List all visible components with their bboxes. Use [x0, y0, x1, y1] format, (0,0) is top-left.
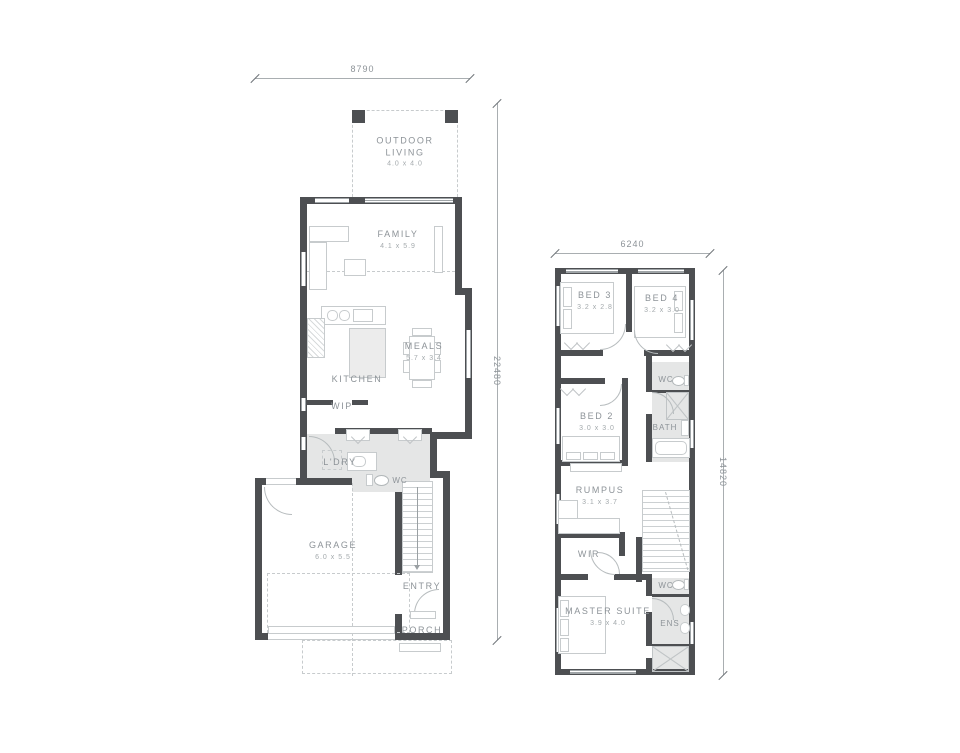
room-label-meals: MEALS 5.7 x 3.4 [405, 341, 444, 363]
vanity-basin [680, 604, 690, 616]
window [315, 198, 349, 203]
room-name: WC [658, 375, 673, 384]
wall [455, 197, 462, 292]
window [301, 398, 306, 411]
wall [614, 574, 646, 580]
room-name: WIP [331, 401, 353, 411]
door-swing [264, 487, 292, 515]
pillow [566, 452, 581, 460]
sink [339, 310, 350, 321]
room-name: RUMPUS [576, 485, 625, 495]
window [556, 408, 560, 444]
room-name: BED 2 [580, 411, 614, 421]
room-name: PORCH [402, 625, 443, 635]
room-label-garage: GARAGE 6.0 x 5.5 [309, 540, 357, 562]
room-label-master-suite: MASTER SUITE 3.9 x 4.0 [565, 606, 651, 628]
room-label-porch: PORCH [402, 625, 443, 637]
sofa [309, 242, 327, 290]
ceiling-break-line [307, 271, 455, 272]
robe-door-icon [572, 382, 586, 396]
room-label-ldry: L'DRY [323, 457, 357, 469]
wall [443, 478, 450, 640]
wall [430, 471, 450, 478]
room-size: 3.0 x 3.0 [579, 424, 615, 433]
sofa [309, 226, 349, 242]
pillow [560, 638, 569, 652]
upper-height-dimension: 14820 [718, 457, 728, 487]
sink [327, 310, 338, 321]
room-name: ENS [660, 619, 679, 628]
room-name: FAMILY [378, 229, 419, 239]
pillow [563, 309, 572, 329]
room-name: BATH [653, 423, 678, 432]
window [690, 300, 694, 340]
pillow [674, 313, 683, 333]
window [566, 269, 618, 273]
wall [646, 574, 652, 596]
window [301, 437, 306, 450]
room-name: KITCHEN [332, 374, 383, 384]
room-name: MEALS [405, 341, 444, 351]
ground-height-dimension: 22480 [492, 356, 502, 386]
room-size: 4.1 x 5.9 [378, 242, 419, 251]
stair-direction-line [417, 487, 418, 565]
room-label-bed2: BED 2 3.0 x 3.0 [579, 411, 615, 433]
toilet-cistern [684, 375, 689, 386]
wall [646, 356, 652, 392]
toilet [374, 475, 389, 486]
wall [395, 478, 402, 575]
room-size: 3.1 x 3.7 [576, 498, 625, 507]
bathtub-basin [655, 441, 687, 455]
sofa [558, 518, 620, 534]
post [352, 110, 365, 123]
front-door-threshold [410, 611, 436, 619]
wall [626, 268, 632, 332]
robe-door-icon [576, 336, 590, 350]
room-label-rumpus: RUMPUS 3.1 x 3.7 [576, 485, 625, 507]
room-size: 5.7 x 3.4 [405, 354, 444, 363]
room-name: ENTRY [403, 581, 441, 591]
porch-step [399, 643, 441, 652]
room-label-ens: ENS [660, 619, 679, 629]
garage-door-opening [268, 633, 395, 640]
room-name: L'DRY [323, 457, 357, 467]
room-label-wc: WC [392, 476, 407, 486]
door-swing [600, 384, 622, 406]
room-label-entry: ENTRY [403, 581, 441, 593]
room-label-bed4: BED 4 3.2 x 3.0 [644, 293, 680, 315]
car-space-outline [267, 573, 410, 633]
floor-plan-canvas: 8790 22480 OUTDOOR LIVING 4.0 x 4.0 [0, 0, 960, 753]
sliding-door [365, 198, 453, 203]
cooktop [353, 309, 373, 322]
tv-unit [434, 226, 443, 273]
wall [622, 378, 628, 466]
room-size: 3.9 x 4.0 [565, 619, 651, 628]
chair [412, 380, 432, 388]
wall [652, 594, 689, 597]
vanity-basin [680, 622, 690, 634]
room-size: 3.2 x 3.0 [644, 306, 680, 315]
door-swing [634, 330, 658, 354]
dimension-line [255, 78, 470, 79]
room-size: 3.2 x 2.8 [577, 303, 613, 312]
wall [307, 400, 333, 405]
pillow [600, 452, 615, 460]
wall [555, 350, 603, 356]
island-bench [349, 328, 386, 378]
room-name: OUTDOOR LIVING [376, 135, 433, 157]
pillow [563, 287, 572, 307]
upper-width-dimension: 6240 [555, 239, 710, 249]
room-name: WC [392, 476, 407, 485]
toilet-cistern [366, 474, 373, 486]
window [466, 330, 471, 378]
room-name: GARAGE [309, 540, 357, 550]
window [690, 420, 694, 448]
garage-panel-door [268, 626, 395, 634]
toilet-cistern [684, 579, 689, 590]
room-size: 4.0 x 4.0 [361, 160, 449, 169]
window [638, 269, 684, 273]
ground-width-dimension: 8790 [255, 64, 470, 74]
room-label-wir: WIR [578, 549, 600, 561]
room-name: BED 4 [645, 293, 679, 303]
room-name: WIR [578, 549, 600, 559]
vanity [681, 420, 689, 436]
cabinet [570, 463, 622, 472]
wall [352, 400, 368, 405]
post [445, 110, 458, 123]
room-label-outdoor-living: OUTDOOR LIVING 4.0 x 4.0 [361, 135, 449, 168]
shower [652, 646, 689, 672]
wall [255, 478, 262, 640]
pillow [583, 452, 598, 460]
room-label-wc-upper: WC [658, 375, 673, 385]
door-swing [600, 324, 626, 350]
window [301, 252, 306, 286]
stair-arrow-icon [414, 565, 420, 570]
wall [619, 532, 625, 556]
window [570, 670, 636, 674]
pantry-shelves [307, 318, 325, 358]
room-label-bed3: BED 3 3.2 x 2.8 [577, 290, 613, 312]
staircase [642, 490, 690, 572]
window [690, 622, 694, 644]
room-name: WC [658, 581, 673, 590]
room-label-family: FAMILY 4.1 x 5.9 [378, 229, 419, 251]
room-name: MASTER SUITE [565, 606, 651, 616]
dimension-line [555, 253, 710, 254]
room-label-bath: BATH [653, 423, 678, 433]
room-size: 6.0 x 5.5 [309, 553, 357, 562]
chair [412, 328, 432, 336]
room-label-wc-lower: WC [658, 581, 673, 591]
door-opening [266, 478, 296, 485]
coffee-table [344, 259, 366, 276]
room-name: BED 3 [578, 290, 612, 300]
room-label-kitchen: KITCHEN [332, 374, 383, 386]
wall [555, 574, 588, 580]
room-label-wip: WIP [331, 401, 353, 413]
